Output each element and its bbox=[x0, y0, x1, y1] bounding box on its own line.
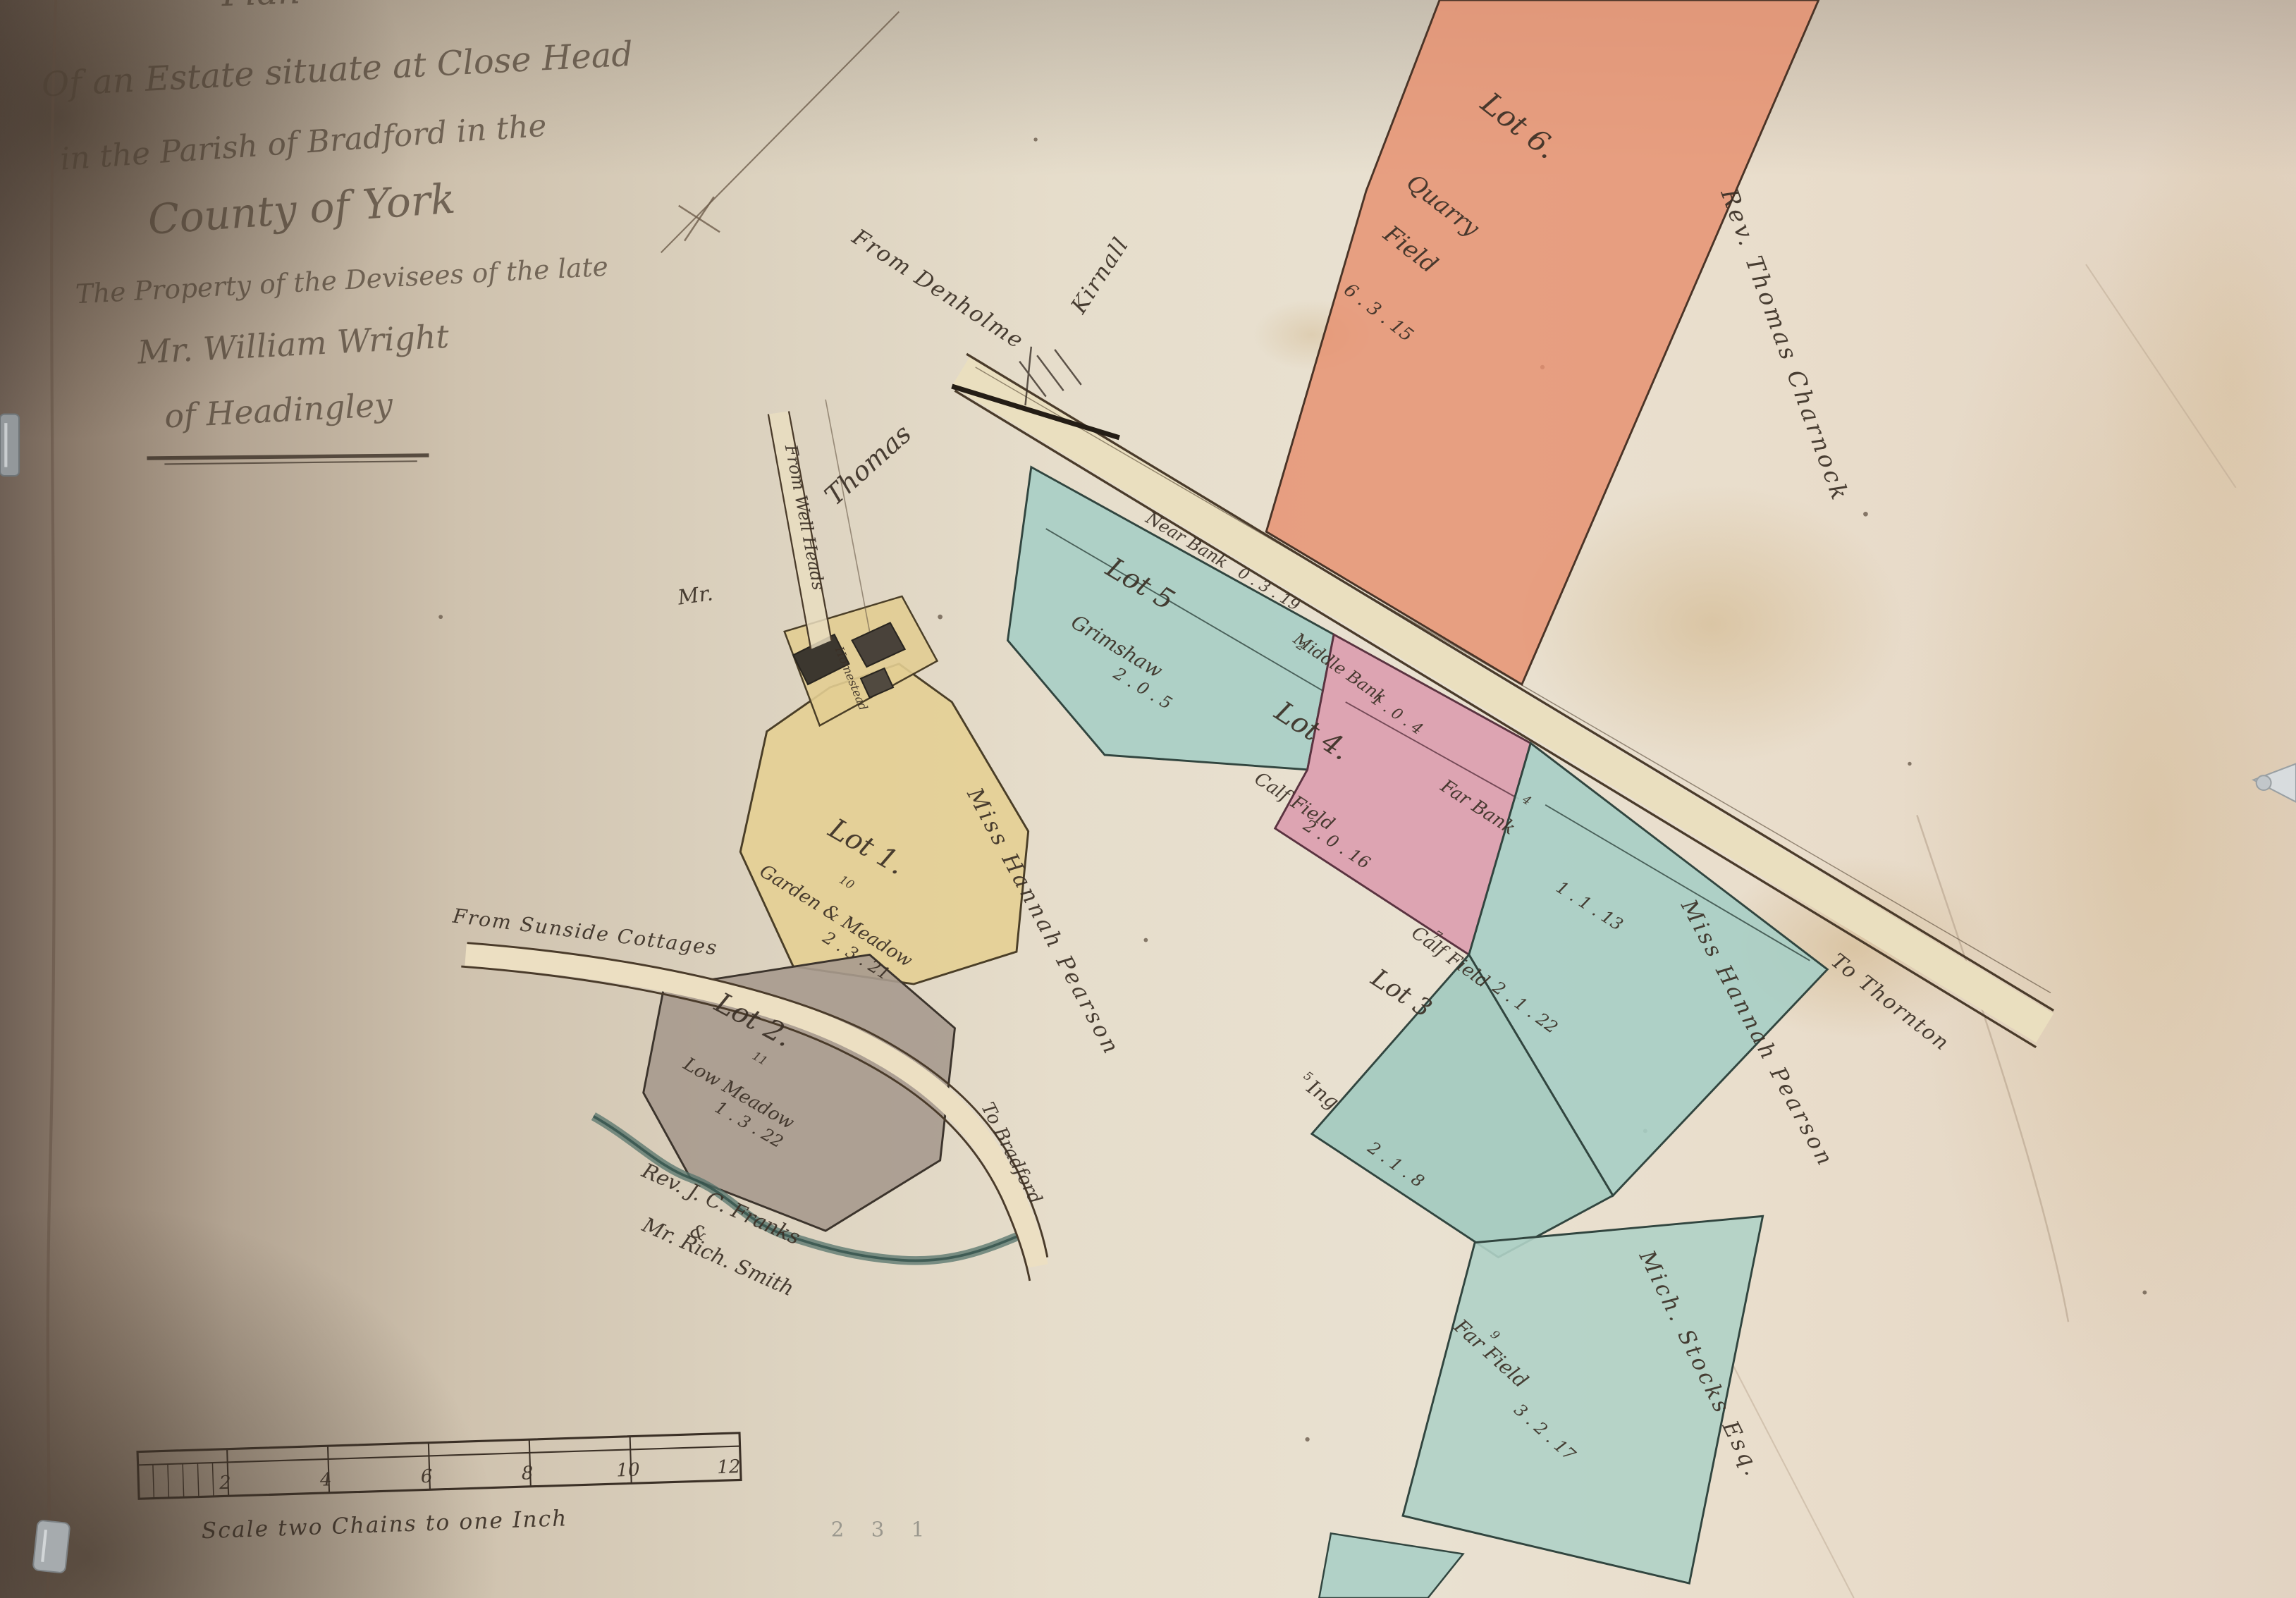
scale-tick-label-2: 2 bbox=[219, 1473, 231, 1494]
scale-tick-label-10: 10 bbox=[616, 1460, 640, 1482]
scale-tick-label-4: 4 bbox=[319, 1469, 332, 1491]
estate-map-photo: 2 4 6 8 10 12 Scale two Chains to one In… bbox=[0, 0, 2296, 1598]
map-canvas: 2 4 6 8 10 12 Scale two Chains to one In… bbox=[0, 0, 2296, 1598]
pencil-note: 2 3 1 bbox=[831, 1517, 935, 1541]
board-clip-bottom-left bbox=[32, 1520, 70, 1573]
scale-tick-label-12: 12 bbox=[717, 1456, 741, 1478]
neighbour-mr: Mr. bbox=[675, 581, 714, 610]
scale-tick-label-8: 8 bbox=[521, 1463, 533, 1485]
scale-tick-label-6: 6 bbox=[420, 1466, 432, 1488]
board-clip-left bbox=[0, 414, 19, 477]
